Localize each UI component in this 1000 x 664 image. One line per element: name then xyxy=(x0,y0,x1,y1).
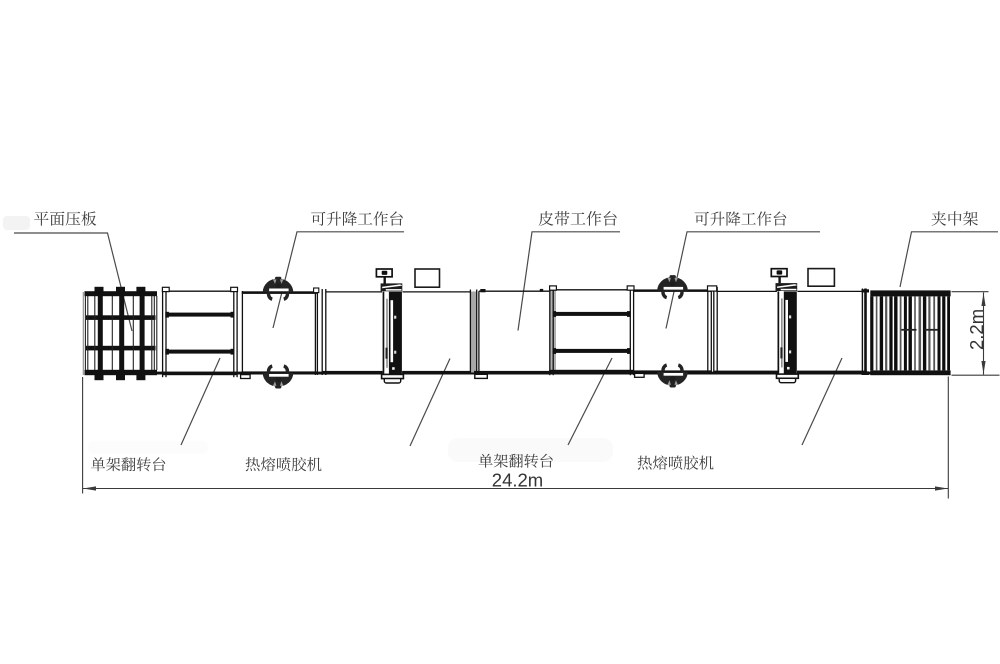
svg-text:24.2m: 24.2m xyxy=(492,470,543,491)
svg-text:2.2m: 2.2m xyxy=(966,309,987,350)
